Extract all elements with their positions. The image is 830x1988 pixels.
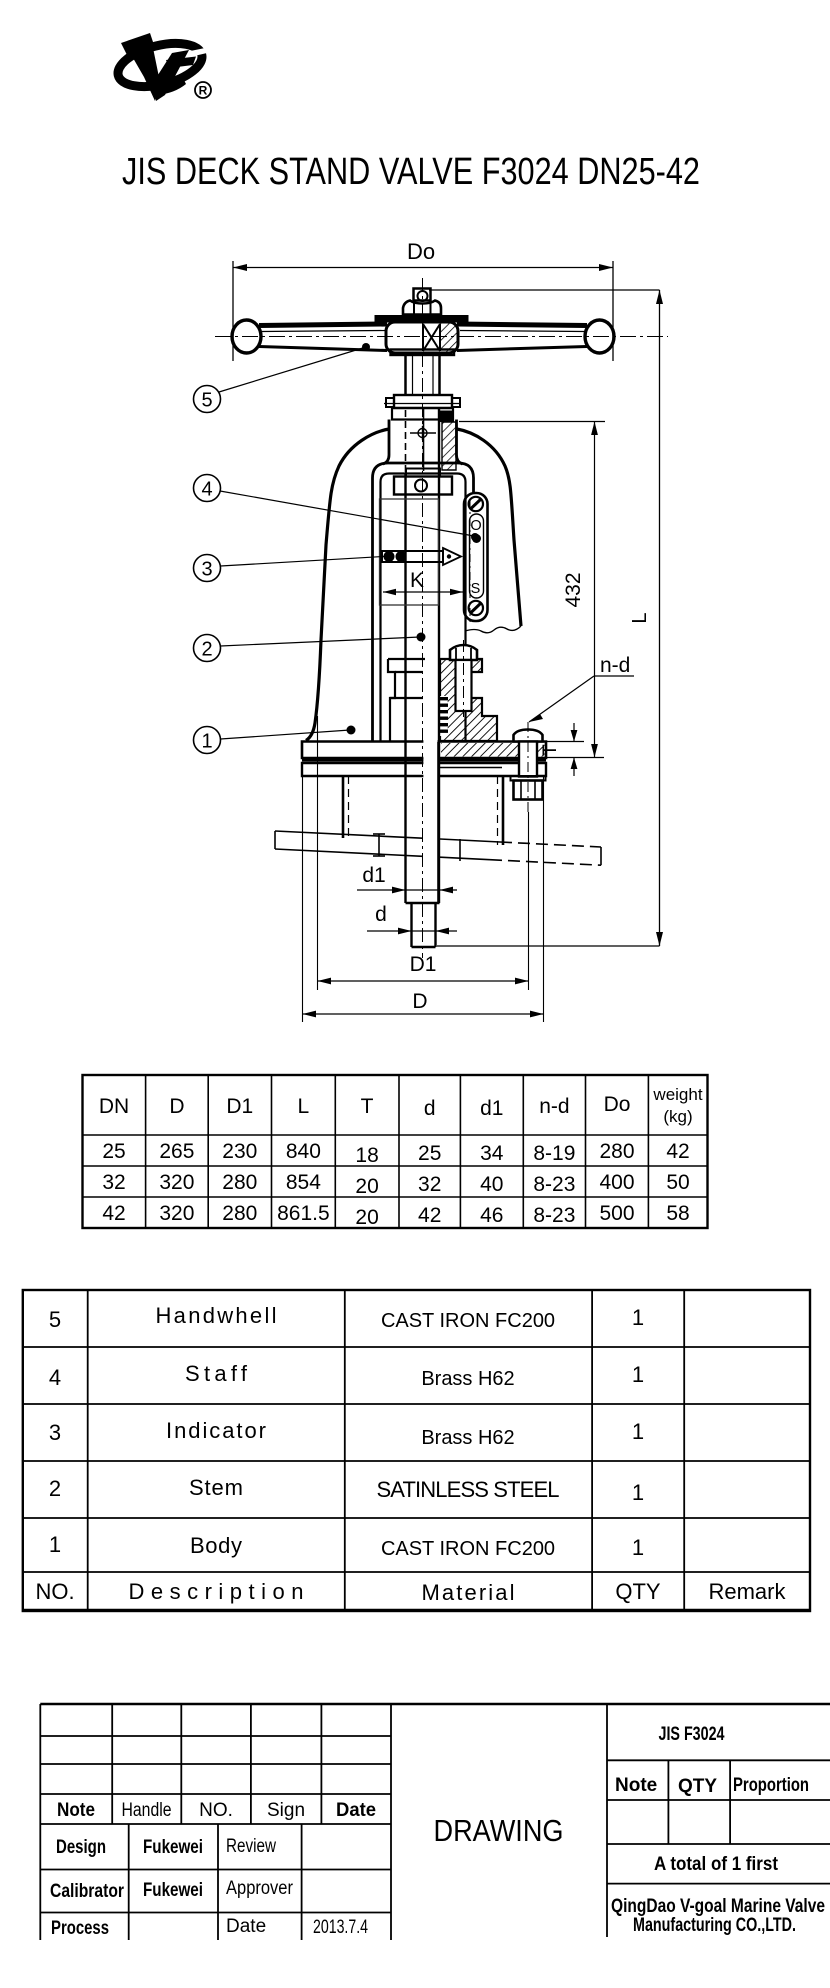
svg-text:8-23: 8-23 <box>533 1173 575 1196</box>
svg-text:Date: Date <box>336 1800 376 1821</box>
svg-text:Review: Review <box>226 1836 276 1857</box>
svg-text:Indicator: Indicator <box>166 1418 266 1443</box>
svg-text:500: 500 <box>599 1202 634 1225</box>
svg-text:T: T <box>540 744 561 756</box>
svg-text:Fukewei: Fukewei <box>143 1837 203 1858</box>
svg-text:Sign: Sign <box>267 1800 305 1821</box>
svg-text:R: R <box>199 84 208 98</box>
svg-text:weight: weight <box>652 1085 702 1104</box>
svg-text:QingDao V-goal Marine Valve: QingDao V-goal Marine Valve <box>611 1896 825 1917</box>
svg-text:D1: D1 <box>226 1095 253 1118</box>
svg-text:A total of 1 first: A total of 1 first <box>654 1854 779 1875</box>
svg-text:Note: Note <box>57 1800 95 1821</box>
svg-text:D: D <box>169 1095 184 1118</box>
svg-text:50: 50 <box>666 1171 689 1194</box>
svg-text:d1: d1 <box>480 1097 503 1120</box>
svg-text:JIS F3024: JIS F3024 <box>659 1724 725 1745</box>
svg-text:Proportion: Proportion <box>733 1775 809 1796</box>
svg-text:QTY: QTY <box>678 1776 717 1797</box>
svg-text:QTY: QTY <box>615 1579 661 1604</box>
svg-text:265: 265 <box>159 1140 194 1163</box>
svg-text:Process: Process <box>51 1918 109 1939</box>
svg-text:5: 5 <box>201 390 212 412</box>
svg-text:CAST IRON FC200: CAST IRON FC200 <box>381 1310 555 1332</box>
svg-text:40: 40 <box>480 1173 503 1196</box>
svg-text:854: 854 <box>286 1171 321 1194</box>
svg-text:Material: Material <box>422 1580 515 1605</box>
svg-text:S: S <box>471 581 481 597</box>
svg-text:3: 3 <box>201 559 212 581</box>
svg-text:5: 5 <box>49 1307 61 1332</box>
svg-text:d1: d1 <box>362 864 385 887</box>
svg-text:25: 25 <box>418 1142 441 1165</box>
svg-text:320: 320 <box>159 1202 194 1225</box>
svg-text:Stem: Stem <box>189 1475 243 1500</box>
svg-text:280: 280 <box>222 1202 257 1225</box>
svg-text:46: 46 <box>480 1204 503 1227</box>
svg-text:18: 18 <box>355 1144 378 1167</box>
svg-text:1: 1 <box>632 1480 644 1505</box>
svg-text:Manufacturing CO.,LTD.: Manufacturing CO.,LTD. <box>633 1915 796 1936</box>
svg-text:Design: Design <box>56 1837 106 1858</box>
svg-text:NO.: NO. <box>199 1800 233 1821</box>
svg-text:2: 2 <box>201 639 212 661</box>
svg-text:T: T <box>361 1095 374 1118</box>
svg-text:Brass H62: Brass H62 <box>421 1427 514 1449</box>
svg-text:Note: Note <box>615 1775 657 1796</box>
svg-text:1: 1 <box>632 1535 644 1560</box>
svg-text:O: O <box>470 518 481 534</box>
svg-text:L: L <box>298 1095 310 1118</box>
svg-text:DN: DN <box>99 1095 129 1118</box>
svg-text:1: 1 <box>632 1305 644 1330</box>
svg-text:Do: Do <box>407 239 435 264</box>
svg-text:25: 25 <box>102 1140 125 1163</box>
svg-text:Body: Body <box>190 1533 242 1558</box>
svg-text:K: K <box>410 569 424 592</box>
svg-text:n-d: n-d <box>600 654 630 677</box>
svg-text:(kg): (kg) <box>663 1107 692 1126</box>
svg-text:4: 4 <box>201 479 212 501</box>
svg-text:34: 34 <box>480 1142 504 1165</box>
svg-text:Do: Do <box>604 1093 631 1116</box>
svg-text:4: 4 <box>49 1365 61 1390</box>
svg-text:230: 230 <box>222 1140 257 1163</box>
svg-text:42: 42 <box>102 1202 125 1225</box>
svg-text:D1: D1 <box>410 953 437 976</box>
svg-text:Approver: Approver <box>226 1878 294 1899</box>
svg-text:1: 1 <box>632 1362 644 1387</box>
svg-text:d: d <box>375 903 387 926</box>
svg-text:2: 2 <box>49 1476 61 1501</box>
svg-text:D: D <box>412 990 427 1013</box>
svg-text:n-d: n-d <box>539 1095 569 1118</box>
svg-text:CAST IRON FC200: CAST IRON FC200 <box>381 1538 555 1560</box>
svg-text:JIS DECK STAND VALVE F3024 DN2: JIS DECK STAND VALVE F3024 DN25-42 <box>122 151 700 193</box>
svg-text:1: 1 <box>201 731 212 753</box>
svg-text:SATINLESS STEEL: SATINLESS STEEL <box>377 1477 560 1502</box>
svg-text:Remark: Remark <box>708 1579 786 1604</box>
svg-text:2013.7.4: 2013.7.4 <box>313 1917 368 1938</box>
svg-text:Brass H62: Brass H62 <box>421 1368 514 1390</box>
svg-text:NO.: NO. <box>35 1579 74 1604</box>
svg-text:3: 3 <box>49 1420 61 1445</box>
svg-text:400: 400 <box>599 1171 634 1194</box>
svg-text:840: 840 <box>286 1140 321 1163</box>
svg-text:DRAWING: DRAWING <box>434 1813 564 1848</box>
svg-text:42: 42 <box>418 1204 441 1227</box>
svg-text:32: 32 <box>418 1173 441 1196</box>
svg-text:d: d <box>424 1097 436 1120</box>
svg-text:Date: Date <box>226 1916 266 1937</box>
svg-text:320: 320 <box>159 1171 194 1194</box>
svg-text:Calibrator: Calibrator <box>50 1881 124 1902</box>
svg-text:8-23: 8-23 <box>533 1204 575 1227</box>
svg-text:20: 20 <box>355 1206 378 1229</box>
svg-text:8-19: 8-19 <box>533 1142 575 1165</box>
svg-text:1: 1 <box>49 1532 61 1557</box>
svg-text:Fukewei: Fukewei <box>143 1880 203 1901</box>
svg-text:42: 42 <box>666 1140 689 1163</box>
svg-text:Handle: Handle <box>122 1800 172 1821</box>
svg-text:20: 20 <box>355 1175 378 1198</box>
svg-text:861.5: 861.5 <box>277 1202 330 1225</box>
svg-text:1: 1 <box>632 1419 644 1444</box>
svg-text:432: 432 <box>562 572 585 607</box>
svg-text:L: L <box>629 612 651 623</box>
svg-text:32: 32 <box>102 1171 125 1194</box>
svg-text:58: 58 <box>666 1202 689 1225</box>
svg-text:280: 280 <box>222 1171 257 1194</box>
svg-text:280: 280 <box>599 1140 634 1163</box>
